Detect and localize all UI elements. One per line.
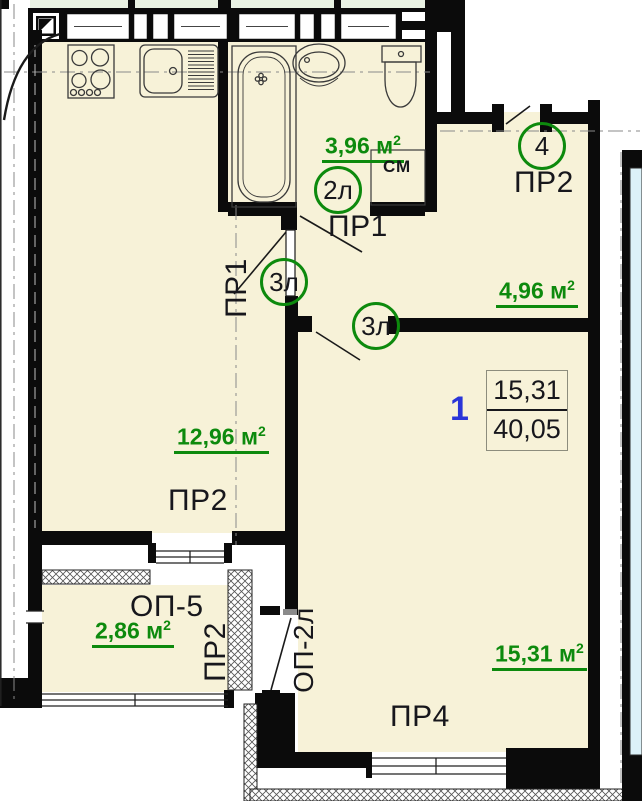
neighbor-unit-right xyxy=(622,150,642,801)
main-room-label: ПР4 xyxy=(390,702,450,732)
main-room-area-label: 15,31 м2 xyxy=(492,641,587,671)
floor-plan: 3,96 м2 СМ 2л ПР1 ПР1 3л 3л 4 ПР2 4,96 м… xyxy=(0,0,642,801)
flat-number: 1 xyxy=(450,390,469,429)
flat-total-area: 40,05 xyxy=(487,411,567,450)
hall-vertical-label-wrap: ПР1 xyxy=(221,253,253,323)
hall-area-label: 4,96 м2 xyxy=(496,278,578,308)
door-circle-entry: 4 xyxy=(518,122,566,170)
door-circle-bath: 2л xyxy=(314,166,362,214)
balcony-door-label-wrap: ОП-2л xyxy=(288,591,320,709)
top-window-band xyxy=(28,8,437,42)
door-circle-hall-lower: 3л xyxy=(352,302,400,350)
flat-area-box: 15,31 40,05 xyxy=(486,370,568,451)
washing-machine-label: СМ xyxy=(383,158,411,175)
corridor-top-label: ПР2 xyxy=(514,168,574,198)
living-label: ПР2 xyxy=(168,486,228,516)
balcony-vertical-label-wrap: ПР2 xyxy=(200,617,232,687)
hall-vertical-label: ПР1 xyxy=(222,258,252,318)
flat-living-area: 15,31 xyxy=(487,371,567,411)
bath-door-label: ПР1 xyxy=(328,212,388,242)
neighbor-unit-top xyxy=(30,0,437,9)
door-circle-hall-upper: 3л xyxy=(260,258,308,306)
balcony-vertical-label: ПР2 xyxy=(201,622,231,682)
living-area-label: 12,96 м2 xyxy=(174,424,269,454)
balcony-door-label: ОП-2л xyxy=(290,607,318,693)
balcony-area-label: 2,86 м2 xyxy=(92,618,174,648)
